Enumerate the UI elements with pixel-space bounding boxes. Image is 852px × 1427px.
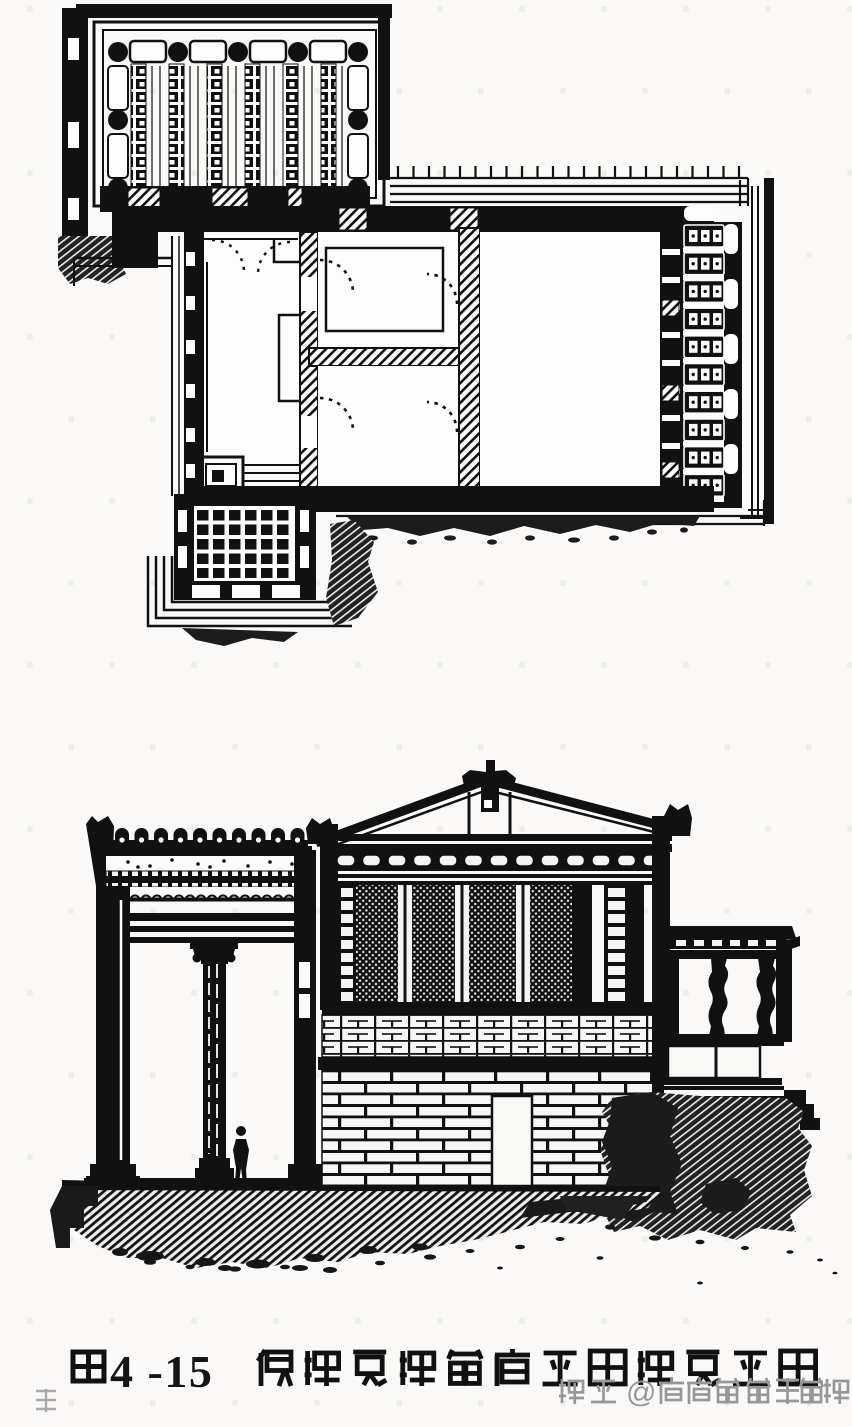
svg-text:4 -15: 4 -15 (110, 1346, 213, 1397)
svg-text:@: @ (626, 1376, 656, 1409)
